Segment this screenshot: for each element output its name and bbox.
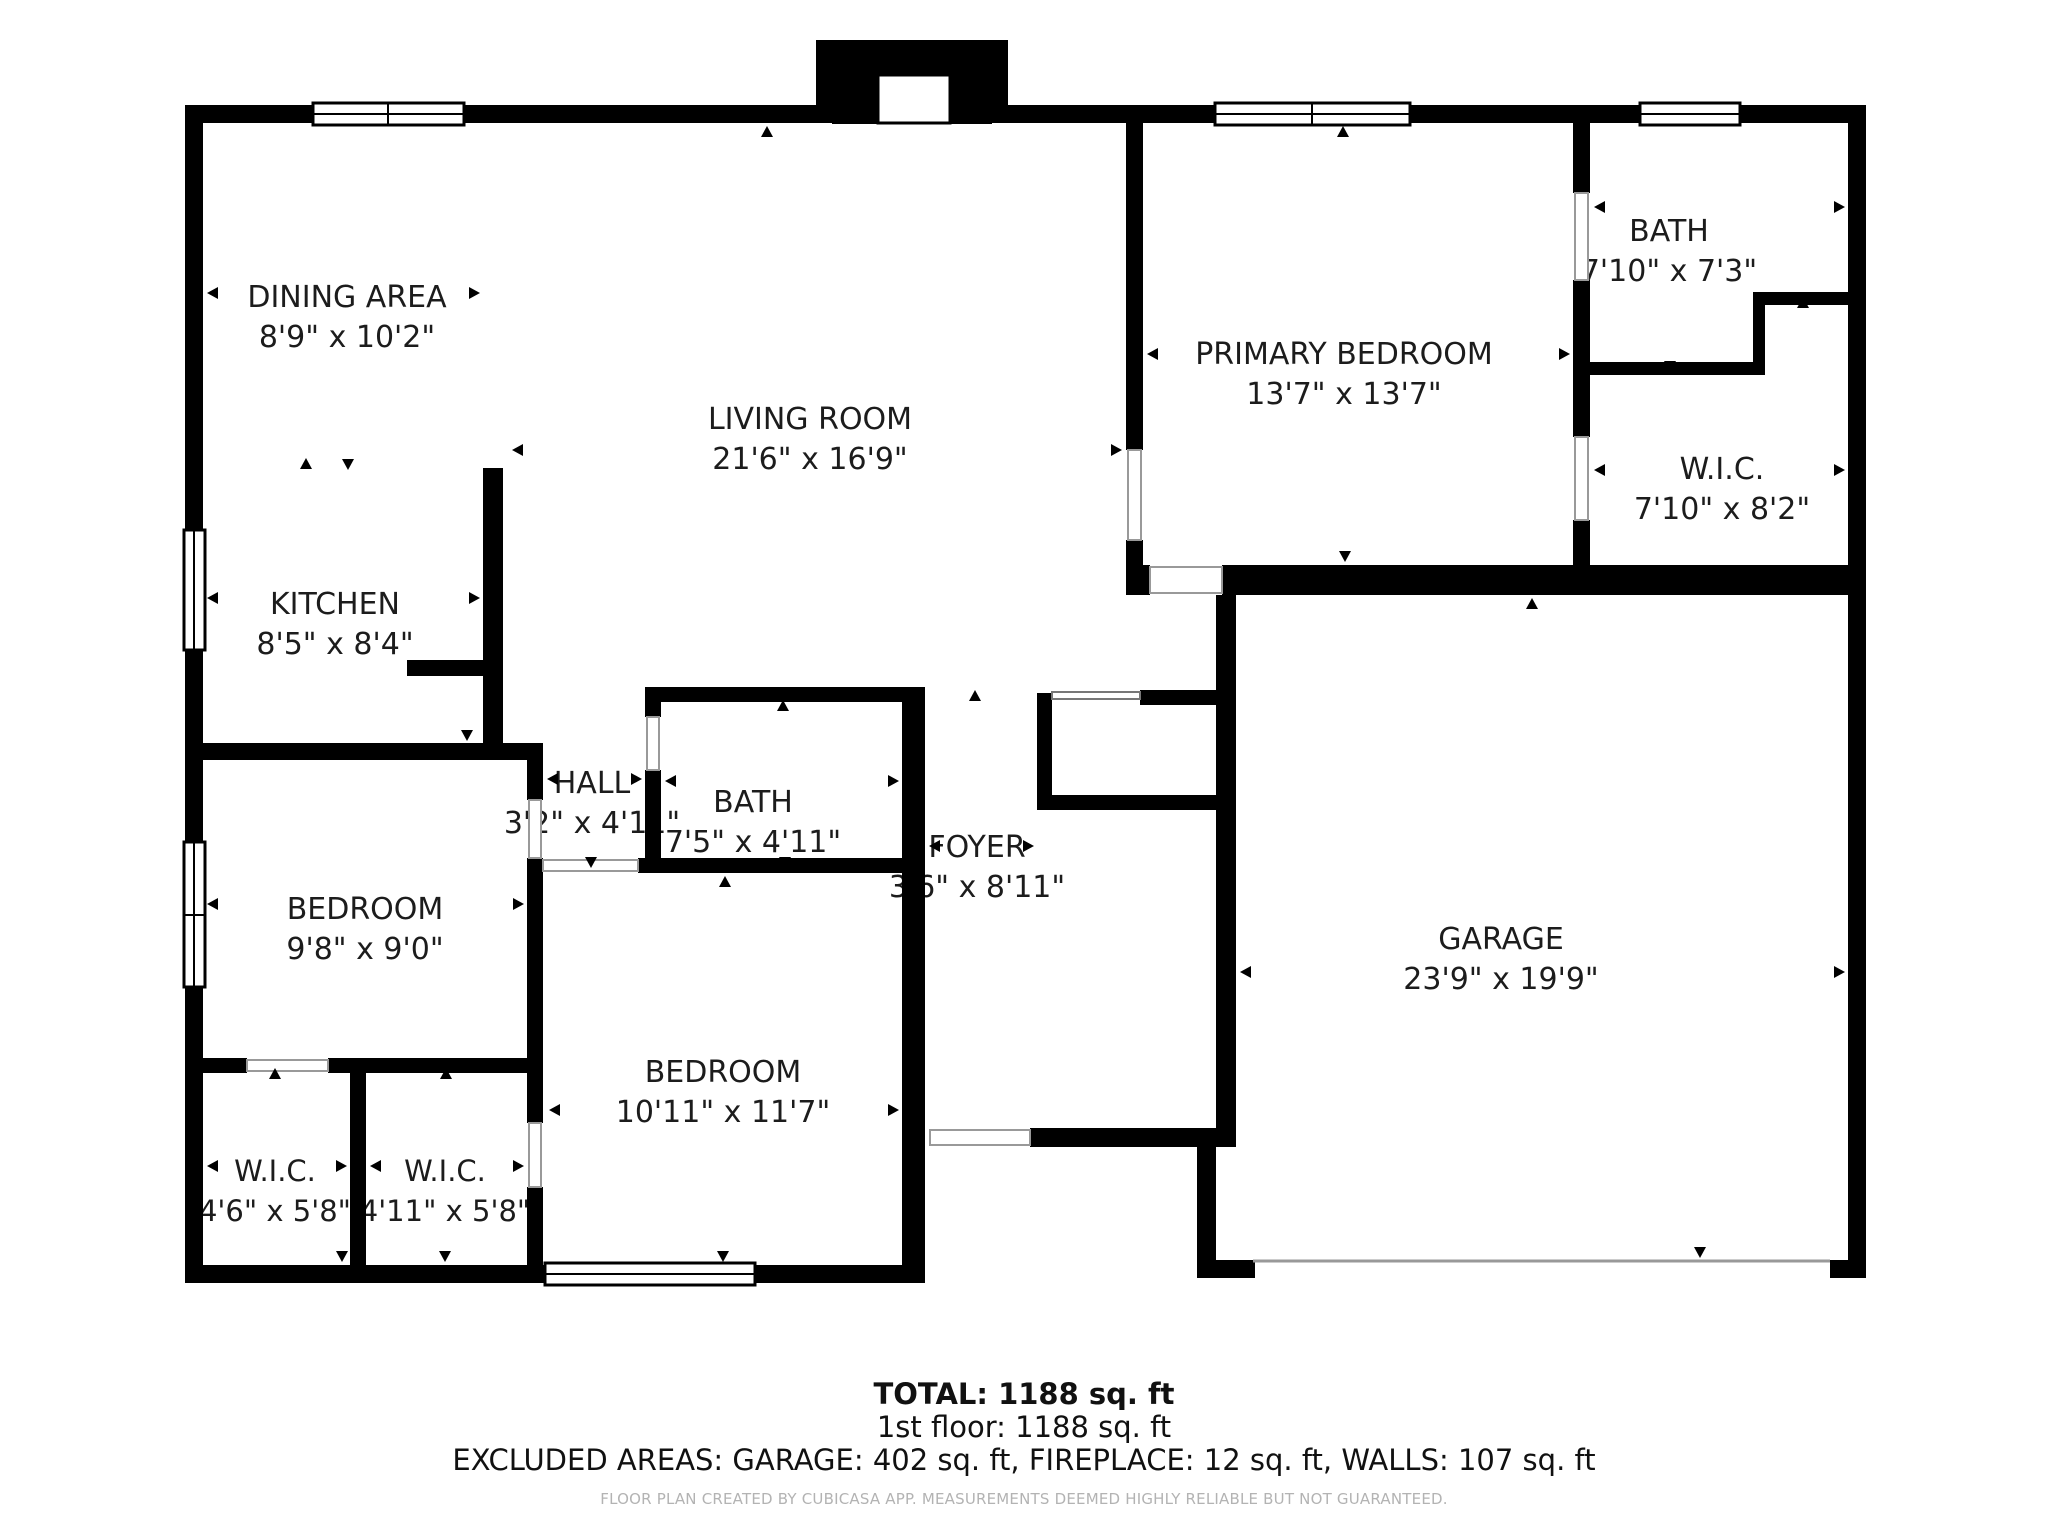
room-name: BATH [1581, 212, 1757, 252]
room-dims: 8'5" x 8'4" [256, 625, 413, 665]
room-label-wic-right: W.I.C. 7'10" x 8'2" [1634, 450, 1810, 530]
floor-plan: DINING AREA 8'9" x 10'2" LIVING ROOM 21'… [0, 0, 2048, 1536]
window-bath-top [1640, 103, 1740, 125]
room-label-wic-bottom-mid: W.I.C. 4'11" x 5'8" [360, 1151, 530, 1231]
disclaimer: FLOOR PLAN CREATED BY CUBICASA APP. MEAS… [0, 1490, 2048, 1508]
door-primary-bedroom [1128, 450, 1141, 540]
fireplace [816, 40, 1008, 123]
door-garage-entry [1150, 567, 1222, 593]
door-wic-right [1575, 437, 1588, 520]
room-name: GARAGE [1403, 920, 1598, 960]
room-dims: 4'6" x 5'8" [199, 1191, 351, 1231]
room-label-bedroom-left: BEDROOM 9'8" x 9'0" [286, 890, 443, 970]
room-name: BEDROOM [616, 1053, 831, 1093]
window-primary-bedroom [1215, 103, 1410, 125]
room-dims: 7'10" x 8'2" [1634, 490, 1810, 530]
room-name: PRIMARY BEDROOM [1195, 335, 1493, 375]
room-label-primary-bedroom: PRIMARY BEDROOM 13'7" x 13'7" [1195, 335, 1493, 415]
summary-total: TOTAL: 1188 sq. ft [0, 1378, 2048, 1411]
room-label-bath-mid: BATH 7'5" x 4'11" [665, 783, 841, 863]
door-wic-bottom-left [247, 1060, 328, 1071]
room-name: BEDROOM [286, 890, 443, 930]
room-name: DINING AREA [247, 278, 446, 318]
room-dims: 7'10" x 7'3" [1581, 252, 1757, 292]
room-label-kitchen: KITCHEN 8'5" x 8'4" [256, 585, 413, 665]
room-name: BATH [665, 783, 841, 823]
room-label-garage: GARAGE 23'9" x 19'9" [1403, 920, 1598, 1000]
room-dims: 3'6" x 8'11" [889, 868, 1065, 908]
room-dims: 3'2" x 4'11" [504, 804, 680, 844]
dimension-arrows [207, 126, 1845, 1262]
room-label-wic-bottom-left: W.I.C. 4'6" x 5'8" [199, 1151, 351, 1231]
room-name: W.I.C. [199, 1151, 351, 1191]
summary-excluded-areas: EXCLUDED AREAS: GARAGE: 402 sq. ft, FIRE… [0, 1444, 2048, 1477]
room-dims: 4'11" x 5'8" [360, 1191, 530, 1231]
room-name: LIVING ROOM [708, 400, 912, 440]
room-name: W.I.C. [360, 1151, 530, 1191]
closet-sliding-door [1052, 692, 1140, 699]
room-name: KITCHEN [256, 585, 413, 625]
room-name: FOYER [889, 828, 1065, 868]
room-label-hall: HALL 3'2" x 4'11" [504, 764, 680, 844]
room-dims: 23'9" x 19'9" [1403, 960, 1598, 1000]
room-label-foyer: FOYER 3'6" x 8'11" [889, 828, 1065, 908]
front-door [930, 1130, 1030, 1145]
room-label-bath-top: BATH 7'10" x 7'3" [1581, 212, 1757, 292]
room-label-bedroom-bottom: BEDROOM 10'11" x 11'7" [616, 1053, 831, 1133]
summary-first-floor: 1st floor: 1188 sq. ft [0, 1411, 2048, 1444]
room-dims: 8'9" x 10'2" [247, 318, 446, 358]
room-name: W.I.C. [1634, 450, 1810, 490]
window-bedroom-left [184, 842, 205, 987]
room-dims: 7'5" x 4'11" [665, 823, 841, 863]
room-dims: 13'7" x 13'7" [1195, 375, 1493, 415]
room-dims: 10'11" x 11'7" [616, 1093, 831, 1133]
door-bedroom-bottom [543, 860, 638, 871]
room-dims: 9'8" x 9'0" [286, 930, 443, 970]
window-kitchen [184, 530, 205, 650]
door-wic-bottom-mid [529, 1123, 541, 1187]
room-name: HALL [504, 764, 680, 804]
room-label-dining: DINING AREA 8'9" x 10'2" [247, 278, 446, 358]
room-label-living: LIVING ROOM 21'6" x 16'9" [708, 400, 912, 480]
summary: TOTAL: 1188 sq. ft 1st floor: 1188 sq. f… [0, 1378, 2048, 1477]
window-dining [313, 103, 464, 125]
window-bedroom-bottom [545, 1263, 755, 1285]
door-bath-mid [647, 717, 659, 770]
room-dims: 21'6" x 16'9" [708, 440, 912, 480]
